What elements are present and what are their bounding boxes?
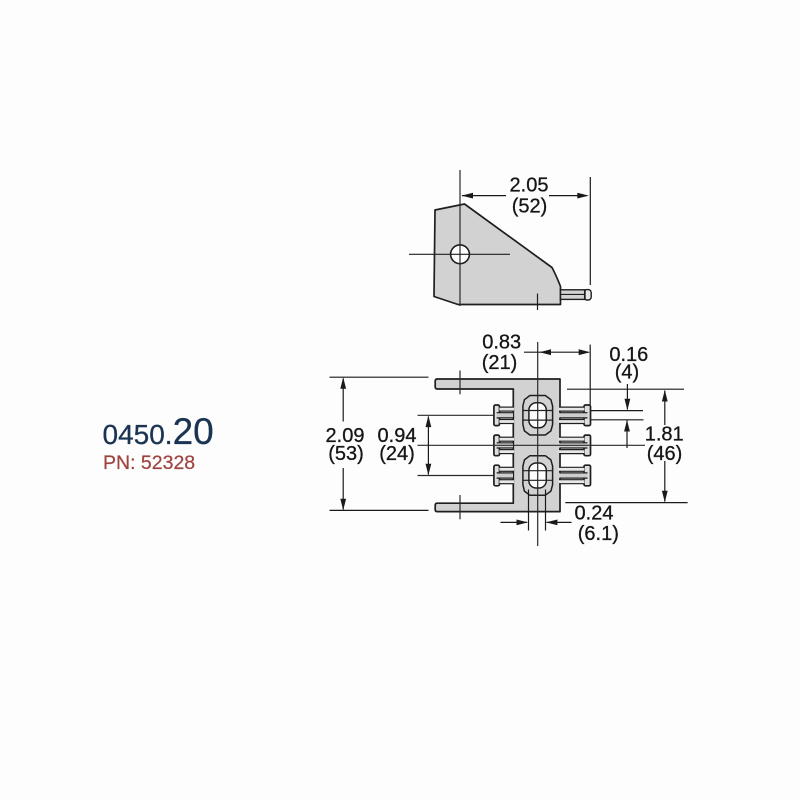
svg-text:(21): (21) bbox=[482, 352, 518, 374]
svg-text:(6.1): (6.1) bbox=[578, 523, 619, 545]
svg-text:(46): (46) bbox=[647, 443, 683, 465]
svg-text:(4): (4) bbox=[615, 362, 639, 384]
svg-text:2.05: 2.05 bbox=[510, 175, 549, 197]
svg-text:PN: 52328: PN: 52328 bbox=[103, 452, 195, 474]
svg-text:0.24: 0.24 bbox=[575, 503, 614, 525]
svg-text:(53): (53) bbox=[328, 443, 364, 465]
svg-text:0.83: 0.83 bbox=[482, 331, 521, 353]
svg-text:(52): (52) bbox=[512, 196, 548, 218]
svg-text:(24): (24) bbox=[379, 443, 415, 465]
